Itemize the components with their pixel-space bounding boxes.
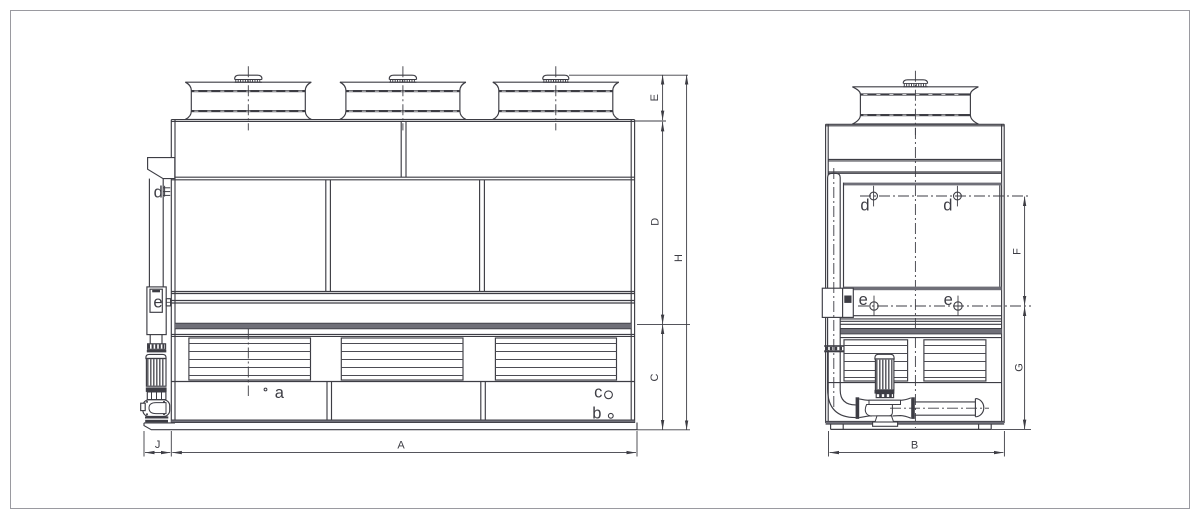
svg-text:c: c [594,384,602,402]
svg-text:B: B [911,439,918,451]
svg-text:G: G [1014,363,1026,372]
svg-text:a: a [275,384,285,402]
svg-text:b: b [592,404,601,422]
svg-text:d: d [154,184,163,202]
svg-text:A: A [397,439,405,451]
svg-text:d: d [860,196,869,214]
svg-text:e: e [153,294,162,312]
svg-text:C: C [649,373,661,381]
svg-text:H: H [673,254,685,262]
svg-text:e: e [944,291,953,309]
svg-text:E: E [649,94,661,101]
svg-text:F: F [1012,248,1024,255]
svg-text:d: d [943,196,952,214]
svg-text:e: e [859,291,868,309]
svg-text:D: D [649,218,661,226]
svg-text:J: J [155,439,161,451]
